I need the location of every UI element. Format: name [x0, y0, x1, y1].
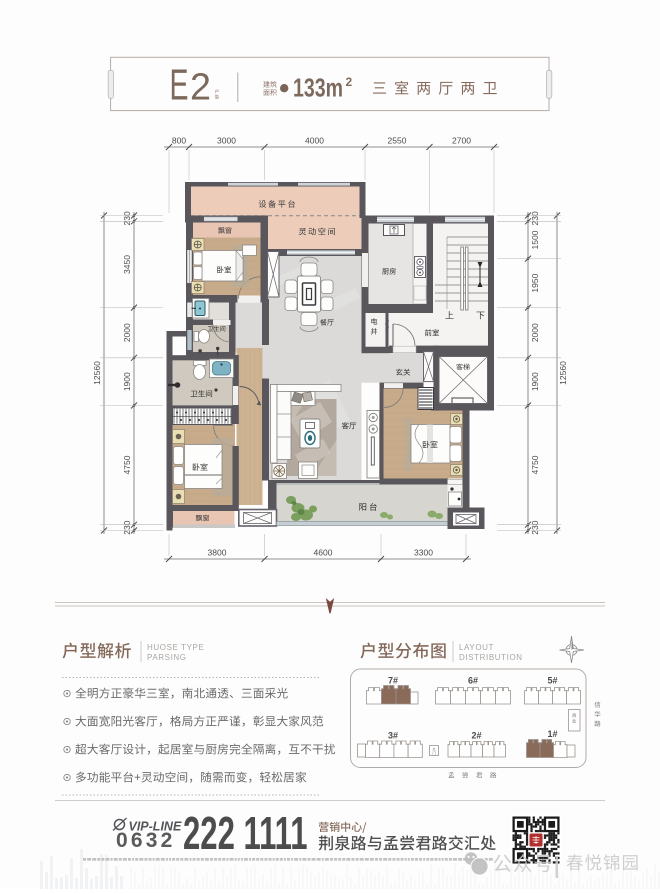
svg-text:2000: 2000 [122, 323, 132, 342]
svg-text:4600: 4600 [314, 548, 333, 558]
svg-text:3450: 3450 [122, 255, 132, 274]
svg-text:800: 800 [172, 136, 186, 146]
svg-text:222 1111: 222 1111 [183, 807, 308, 859]
svg-text:7#: 7# [388, 676, 398, 686]
svg-text:4000: 4000 [305, 136, 324, 146]
svg-text:12560: 12560 [558, 361, 568, 385]
svg-text:12560: 12560 [92, 361, 102, 385]
svg-text:2: 2 [346, 75, 353, 89]
svg-text:4750: 4750 [122, 455, 132, 474]
svg-text:230: 230 [530, 211, 540, 225]
svg-text:2000: 2000 [530, 323, 540, 342]
svg-text:3300: 3300 [414, 548, 433, 558]
svg-text:1#: 1# [547, 729, 557, 739]
svg-text:HUOSE TYPE: HUOSE TYPE [147, 643, 204, 652]
svg-text:5#: 5# [547, 676, 557, 686]
svg-text:230: 230 [122, 211, 132, 225]
svg-text:3000: 3000 [217, 136, 236, 146]
svg-text:2: 2 [190, 66, 211, 108]
svg-text:3800: 3800 [208, 548, 227, 558]
svg-text:0632: 0632 [116, 829, 176, 852]
svg-text:1900: 1900 [530, 372, 540, 391]
svg-text:E: E [170, 60, 189, 109]
svg-text:2#: 2# [471, 731, 481, 741]
svg-text:2700: 2700 [452, 136, 471, 146]
svg-text:DISTRIBUTION: DISTRIBUTION [459, 653, 523, 662]
svg-text:1500: 1500 [530, 230, 540, 249]
svg-text:6#: 6# [468, 676, 478, 686]
svg-text:4750: 4750 [530, 455, 540, 474]
svg-text:133m: 133m [293, 72, 343, 102]
svg-text:PARSING: PARSING [147, 653, 187, 662]
svg-text:1900: 1900 [122, 372, 132, 391]
svg-text:230: 230 [530, 520, 540, 534]
svg-text:2550: 2550 [388, 136, 407, 146]
svg-text:1950: 1950 [530, 273, 540, 292]
svg-text:3#: 3# [388, 731, 398, 741]
svg-text:LAYOUT: LAYOUT [459, 643, 494, 652]
svg-text:230: 230 [122, 520, 132, 534]
